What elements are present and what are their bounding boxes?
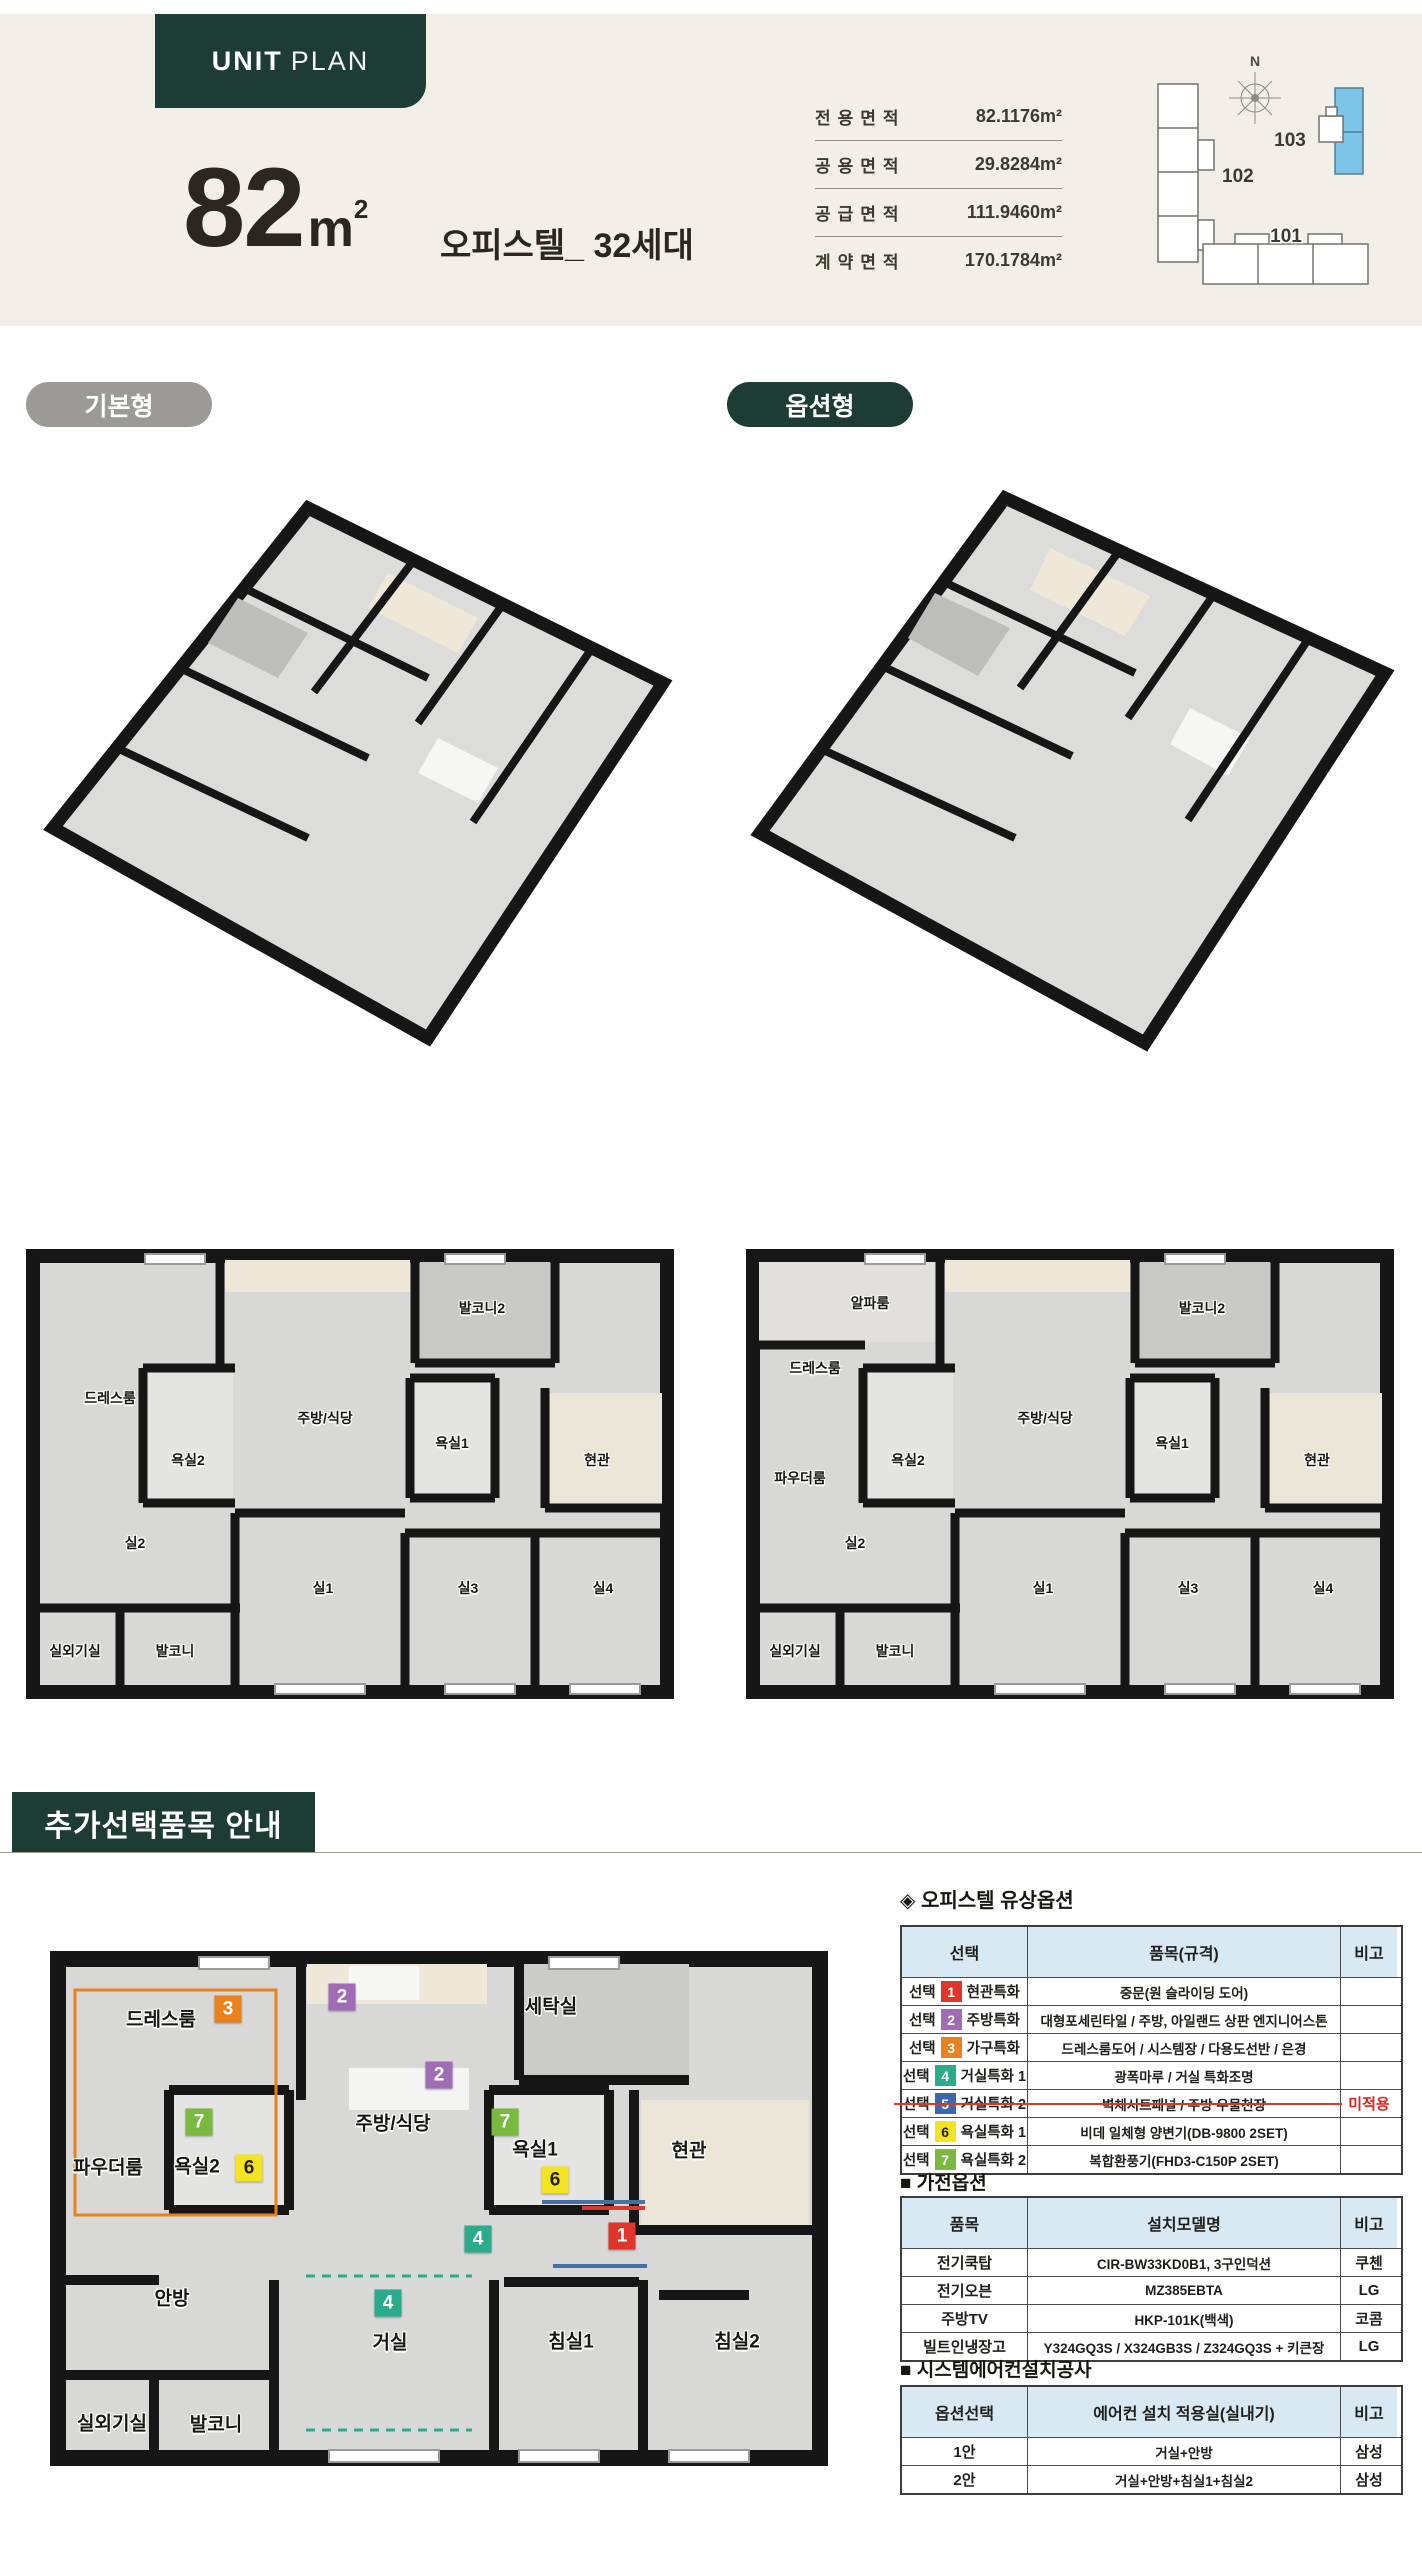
- unit-plan-badge: UNIT PLAN: [155, 14, 426, 108]
- room-label-powder: 파우더룸: [73, 2153, 143, 2180]
- unit-size-number: 82: [183, 152, 304, 264]
- site-building-102: [1158, 84, 1214, 262]
- compass-icon: [1229, 72, 1281, 124]
- site-label-101: 101: [1270, 226, 1302, 247]
- area-label: 공용면적: [815, 152, 906, 177]
- col-header-item: 품목: [902, 2198, 1027, 2248]
- room-label-room4: 실4: [593, 1578, 614, 1598]
- select-prefix: 선택: [909, 2009, 936, 2030]
- room-label-balcony2: 발코니2: [1179, 1298, 1225, 1318]
- appliance-options-title: ■ 가전옵션: [900, 2168, 987, 2195]
- site-building-103: [1319, 88, 1363, 174]
- unit-size-title: 82 m 2: [183, 152, 368, 264]
- item-cell: 복합환풍기(FHD3-C150P 2SET): [1027, 2146, 1340, 2173]
- select-cell: 선택 1 현관특화: [902, 1978, 1027, 2005]
- room-label-balcony: 발코니: [190, 2410, 242, 2437]
- rooms-cell: 거실+안방+침실1+침실2: [1027, 2466, 1340, 2493]
- select-marker-2: 2: [941, 2009, 962, 2030]
- room-label-dressroom: 드레스룸: [126, 2005, 196, 2032]
- room-label-balcony: 발코니: [876, 1641, 915, 1661]
- select-category: 욕실특화 1: [961, 2121, 1026, 2142]
- marker-7: 7: [492, 2109, 519, 2136]
- note-cell: [1340, 2034, 1397, 2061]
- annotated-option-plan: 드레스룸 3 2 세탁실 2 주방/식당 7 욕실2 6 파우더룸 7 욕실1 …: [49, 1950, 829, 2467]
- option-cell: 1안: [902, 2438, 1027, 2465]
- table-row: 선택 2 주방특화 대형포세린타일 / 주방, 아일랜드 상판 엔지니어스톤: [902, 2005, 1401, 2033]
- unit-subtitle: 오피스텔_ 32세대: [440, 218, 694, 267]
- select-prefix: 선택: [903, 2149, 930, 2170]
- brand-cell: 삼성: [1340, 2438, 1397, 2465]
- col-header-select: 선택: [902, 1927, 1027, 1977]
- select-category: 주방특화: [967, 2009, 1020, 2030]
- room-label-bath2: 욕실2: [891, 1450, 925, 1470]
- area-value: 29.8284m²: [975, 154, 1062, 175]
- paid-options-table: 선택 품목(규격) 비고 선택 1 현관특화 중문(원 슬라이딩 도어) 선택 …: [900, 1925, 1403, 2175]
- marker-7: 7: [186, 2109, 213, 2136]
- room-label-entry: 현관: [584, 1450, 610, 1470]
- table-header-row: 선택 품목(규격) 비고: [902, 1927, 1401, 1977]
- compass-north-label: N: [1250, 53, 1260, 69]
- room-label-powder: 파우더룸: [774, 1468, 826, 1488]
- item-cell: 드레스룸도어 / 시스템장 / 다용도선반 / 은경: [1027, 2034, 1340, 2061]
- table-row: 선택 4 거실특화 1 광폭마루 / 거실 특화조명: [902, 2061, 1401, 2089]
- room-label-dressroom: 드레스룸: [84, 1388, 136, 1408]
- area-value: 82.1176m²: [976, 106, 1062, 127]
- area-table: 전용면적 82.1176m² 공용면적 29.8284m² 공급면적 111.9…: [815, 93, 1062, 284]
- item-name-cell: 전기오븐: [902, 2277, 1027, 2304]
- table-row: 선택 6 욕실특화 1 비데 일체형 양변기(DB-9800 2SET): [902, 2117, 1401, 2145]
- site-label-102: 102: [1222, 166, 1254, 187]
- area-value: 170.1784m²: [965, 250, 1062, 271]
- note-cell: [1340, 2062, 1397, 2089]
- area-label: 공급면적: [815, 200, 906, 225]
- room-label-bath2: 욕실2: [174, 2152, 220, 2179]
- room-label-dressroom: 드레스룸: [789, 1358, 841, 1378]
- room-label-balcony: 발코니: [156, 1641, 195, 1661]
- model-cell: HKP-101K(백색): [1027, 2305, 1340, 2332]
- select-cell: 선택 4 거실특화 1: [902, 2062, 1027, 2089]
- aircon-table: 옵션선택 에어컨 설치 적용실(실내기) 비고 1안 거실+안방 삼성 2안 거…: [900, 2385, 1403, 2495]
- section-title-additional-options: 추가선택품목 안내: [12, 1792, 315, 1853]
- item-cell: 중문(원 슬라이딩 도어): [1027, 1978, 1340, 2005]
- col-header-option: 옵션선택: [902, 2387, 1027, 2437]
- floorplan-2d-option: 알파룸 드레스룸 파우더룸 발코니2 주방/식당 욕실2 욕실1 현관 실2 실…: [745, 1248, 1395, 1700]
- table-row: 선택 1 현관특화 중문(원 슬라이딩 도어): [902, 1977, 1401, 2005]
- note-cell: [1340, 2006, 1397, 2033]
- aircon-title: ■ 시스템에어컨설치공사: [900, 2355, 1092, 2382]
- unit-plan-badge-bold: UNIT: [212, 46, 283, 77]
- note-cell: [1340, 2146, 1397, 2173]
- room-label-bath1: 욕실1: [435, 1433, 469, 1453]
- col-header-note: 비고: [1340, 2387, 1397, 2437]
- select-prefix: 선택: [909, 2037, 936, 2058]
- area-value: 111.9460m²: [967, 202, 1062, 223]
- select-marker-6: 6: [935, 2121, 956, 2142]
- brand-cell: LG: [1340, 2277, 1397, 2304]
- table-row-not-applied: 선택 5 거실특화 2 벽체시트패널 / 주방 우물천장 미적용: [902, 2089, 1401, 2117]
- room-label-kitchen: 주방/식당: [355, 2109, 430, 2136]
- brand-cell: 코콤: [1340, 2305, 1397, 2332]
- room-label-room1: 실1: [313, 1578, 334, 1598]
- section-divider: [0, 1852, 1422, 1853]
- floorplan-2d-basic-walls: [25, 1248, 675, 1700]
- iso-plan-basic: [8, 438, 708, 1086]
- table-header-row: 품목 설치모델명 비고: [902, 2198, 1401, 2248]
- select-marker-3: 3: [941, 2037, 962, 2058]
- select-prefix: 선택: [903, 2121, 930, 2142]
- area-row: 공용면적 29.8284m²: [815, 140, 1062, 188]
- col-header-note: 비고: [1340, 2198, 1397, 2248]
- room-label-bath2: 욕실2: [171, 1450, 205, 1470]
- room-label-balcony2: 발코니2: [459, 1298, 505, 1318]
- select-category: 거실특화 2: [961, 2093, 1026, 2114]
- marker-3: 3: [215, 1996, 242, 2023]
- marker-4: 4: [465, 2226, 492, 2253]
- item-cell: 대형포세린타일 / 주방, 아일랜드 상판 엔지니어스톤: [1027, 2006, 1340, 2033]
- room-label-entry: 현관: [1304, 1450, 1330, 1470]
- item-name-cell: 주방TV: [902, 2305, 1027, 2332]
- room-label-room3: 실3: [458, 1578, 479, 1598]
- room-label-room3: 실3: [1178, 1578, 1199, 1598]
- area-row: 공급면적 111.9460m²: [815, 188, 1062, 236]
- note-cell: 미적용: [1340, 2090, 1397, 2117]
- model-cell: CIR-BW33KD0B1, 3구인덕션: [1027, 2249, 1340, 2276]
- model-cell: MZ385EBTA: [1027, 2277, 1340, 2304]
- area-label: 계약면적: [815, 248, 906, 273]
- table-header-row: 옵션선택 에어컨 설치 적용실(실내기) 비고: [902, 2387, 1401, 2437]
- room-label-bed2: 침실2: [714, 2327, 760, 2354]
- option-cell: 2안: [902, 2466, 1027, 2493]
- item-cell: 비데 일체형 양변기(DB-9800 2SET): [1027, 2118, 1340, 2145]
- select-category: 거실특화 1: [961, 2065, 1026, 2086]
- table-row: 1안 거실+안방 삼성: [902, 2437, 1401, 2465]
- floorplan-2d-option-walls: [745, 1248, 1395, 1700]
- col-header-note: 비고: [1340, 1927, 1397, 1977]
- iso-plan-option: [720, 438, 1420, 1086]
- select-category: 욕실특화 2: [961, 2149, 1026, 2170]
- room-label-master: 안방: [155, 2284, 190, 2311]
- brand-cell: LG: [1340, 2333, 1397, 2360]
- room-label-ac-room: 실외기실: [769, 1641, 821, 1661]
- brand-cell: 쿠첸: [1340, 2249, 1397, 2276]
- marker-1: 1: [609, 2223, 636, 2250]
- room-label-room4: 실4: [1313, 1578, 1334, 1598]
- item-cell: 광폭마루 / 거실 특화조명: [1027, 2062, 1340, 2089]
- room-label-laundry: 세탁실: [525, 1992, 577, 2019]
- marker-2: 2: [329, 1984, 356, 2011]
- room-label-living: 거실: [373, 2328, 408, 2355]
- room-label-kitchen: 주방/식당: [297, 1408, 352, 1428]
- select-category: 현관특화: [967, 1981, 1020, 2002]
- room-label-room2: 실2: [845, 1533, 866, 1553]
- marker-6: 6: [236, 2155, 263, 2182]
- table-row: 선택 3 가구특화 드레스룸도어 / 시스템장 / 다용도선반 / 은경: [902, 2033, 1401, 2061]
- room-label-room1: 실1: [1033, 1578, 1054, 1598]
- table-row: 주방TV HKP-101K(백색) 코콤: [902, 2304, 1401, 2332]
- room-label-bed1: 침실1: [548, 2327, 594, 2354]
- table-row: 전기쿡탑 CIR-BW33KD0B1, 3구인덕션 쿠첸: [902, 2248, 1401, 2276]
- paid-options-title: ◈ 오피스텔 유상옵션: [900, 1884, 1074, 1913]
- badge-option-type: 옵션형: [727, 382, 913, 427]
- rooms-cell: 거실+안방: [1027, 2438, 1340, 2465]
- select-category: 가구특화: [967, 2037, 1020, 2058]
- floorplan-2d-basic: 드레스룸 발코니2 주방/식당 욕실2 욕실1 현관 실2 실1 실3 실4 실…: [25, 1248, 675, 1700]
- badge-basic-type: 기본형: [26, 382, 212, 427]
- select-prefix: 선택: [903, 2065, 930, 2086]
- table-row: 전기오븐 MZ385EBTA LG: [902, 2276, 1401, 2304]
- select-cell: 선택 6 욕실특화 1: [902, 2118, 1027, 2145]
- marker-2: 2: [426, 2062, 453, 2089]
- unit-size-unit: m: [308, 199, 354, 259]
- area-label: 전용면적: [815, 104, 906, 129]
- room-label-ac-room: 실외기실: [49, 1641, 101, 1661]
- select-marker-7: 7: [935, 2149, 956, 2170]
- room-label-bath1: 욕실1: [1155, 1433, 1189, 1453]
- col-header-model: 설치모델명: [1027, 2198, 1340, 2248]
- unit-size-sup: 2: [354, 194, 368, 225]
- table-row: 2안 거실+안방+침실1+침실2 삼성: [902, 2465, 1401, 2493]
- marker-6: 6: [542, 2167, 569, 2194]
- marker-4: 4: [375, 2290, 402, 2317]
- select-prefix: 선택: [909, 1981, 936, 2002]
- site-label-103: 103: [1274, 130, 1306, 151]
- item-cell: 벽체시트패널 / 주방 우물천장: [1027, 2090, 1340, 2117]
- select-marker-1: 1: [941, 1981, 962, 2002]
- select-marker-5: 5: [935, 2093, 956, 2114]
- room-label-kitchen: 주방/식당: [1017, 1408, 1072, 1428]
- select-cell: 선택 2 주방특화: [902, 2006, 1027, 2033]
- brand-cell: 삼성: [1340, 2466, 1397, 2493]
- item-name-cell: 전기쿡탑: [902, 2249, 1027, 2276]
- col-header-item: 품목(규격): [1027, 1927, 1340, 1977]
- select-cell: 선택 5 거실특화 2: [902, 2090, 1027, 2117]
- site-map: N 102 103 101: [1140, 52, 1420, 310]
- area-row: 전용면적 82.1176m²: [815, 93, 1062, 140]
- unit-plan-badge-light: PLAN: [291, 46, 370, 77]
- area-row: 계약면적 170.1784m²: [815, 236, 1062, 284]
- room-label-entry: 현관: [672, 2136, 707, 2163]
- room-label-bath1: 욕실1: [512, 2135, 558, 2162]
- note-cell: [1340, 1978, 1397, 2005]
- room-label-alpha: 알파룸: [851, 1293, 890, 1313]
- col-header-room: 에어컨 설치 적용실(실내기): [1027, 2387, 1340, 2437]
- appliance-options-table: 품목 설치모델명 비고 전기쿡탑 CIR-BW33KD0B1, 3구인덕션 쿠첸…: [900, 2196, 1403, 2362]
- select-marker-4: 4: [935, 2065, 956, 2086]
- select-prefix: 선택: [903, 2093, 930, 2114]
- note-cell: [1340, 2118, 1397, 2145]
- room-label-ac-room: 실외기실: [77, 2409, 147, 2436]
- select-cell: 선택 3 가구특화: [902, 2034, 1027, 2061]
- room-label-room2: 실2: [125, 1533, 146, 1553]
